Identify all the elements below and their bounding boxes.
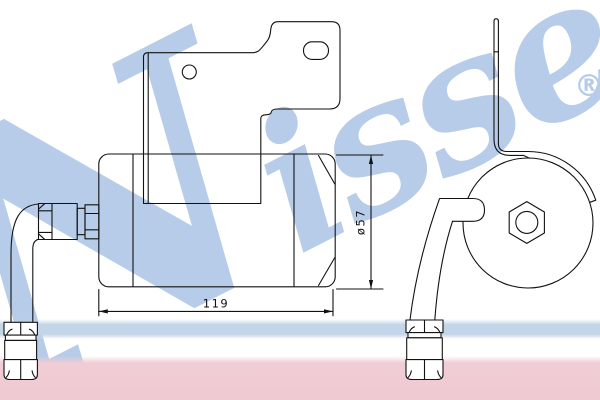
center-port-circle [516, 211, 538, 233]
mounting-bracket [144, 22, 341, 204]
union-nut-chamfers [39, 204, 45, 239]
cylinder-dome-edge-top [319, 156, 335, 185]
capsule-stub-fill [440, 199, 485, 222]
connector-body [407, 338, 443, 360]
union-small-hex [85, 205, 99, 239]
arrowhead-left [99, 309, 108, 313]
arrowhead-top [369, 155, 373, 164]
connector-washer [408, 333, 441, 338]
diameter-dimension-label: ø57 [354, 209, 368, 235]
bracket-slot-hole [304, 42, 329, 60]
connector-washer [5, 335, 36, 340]
tube-right-line [435, 221, 453, 320]
union-small-hex-edges [85, 214, 99, 230]
part-technical-drawing: 119 ø57 [0, 0, 600, 400]
threaded-connector-left [4, 322, 37, 379]
cylinder-dome-edge-bottom [319, 258, 335, 286]
arrowhead-bottom [369, 280, 373, 289]
threaded-connector-bottom [406, 320, 443, 380]
length-dimension-label: 119 [203, 297, 229, 311]
hex-union-fitting [39, 204, 99, 240]
receiver-drier-body [99, 154, 335, 287]
strip-top-cap [494, 19, 498, 21]
elbow-outer-line [11, 204, 39, 322]
center-hex-nut [509, 202, 544, 244]
strip-bend-inner [498, 144, 528, 152]
union-nut-facet-edges [39, 211, 53, 233]
length-dimension: 119 [99, 290, 333, 316]
diameter-dimension: ø57 [337, 155, 384, 289]
connector-body [5, 340, 37, 359]
bracket-outline [144, 22, 341, 204]
outlet-tube [410, 199, 485, 321]
cylinder-outline [99, 154, 335, 287]
diagram-page: Nissens ® [0, 0, 600, 400]
retaining-band-strip [494, 19, 596, 203]
tube-left-line [410, 199, 440, 320]
arrowhead-right [324, 309, 333, 313]
end-view-circle [463, 158, 593, 288]
union-nut-body [39, 204, 78, 240]
union-neck [77, 208, 85, 234]
elbow-inner-line [33, 239, 39, 322]
bracket-round-hole [182, 65, 196, 79]
inlet-elbow-pipe [11, 204, 99, 323]
end-view-with-hex-nut [463, 19, 596, 288]
